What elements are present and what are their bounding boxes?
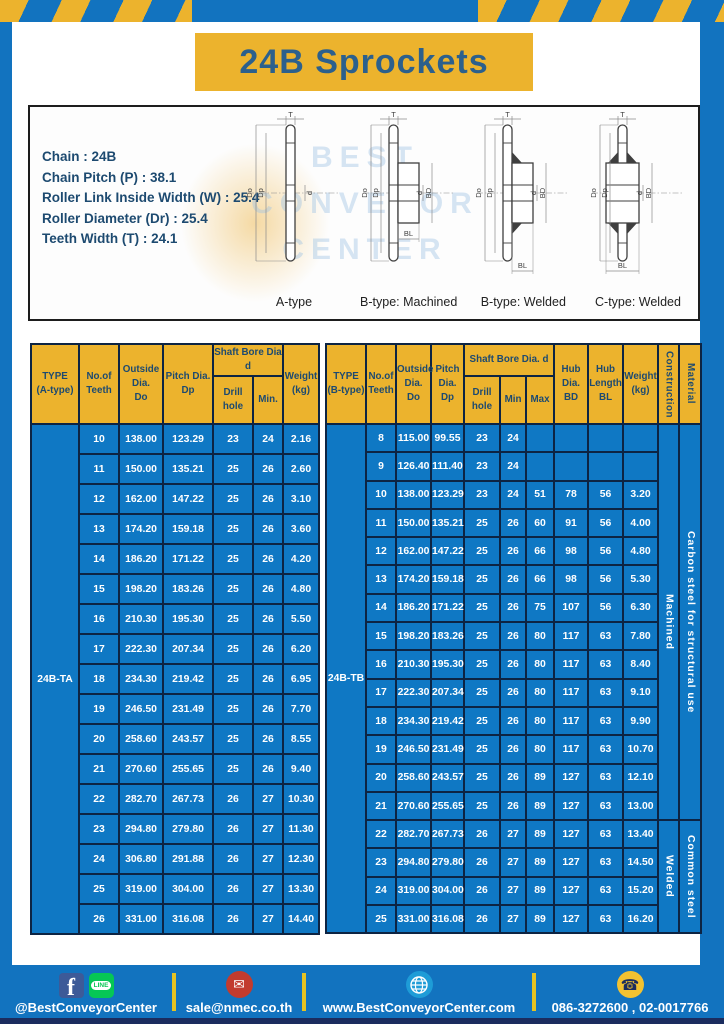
sprocket-table-b: TYPE (B-type)No.of TeethOutside Dia. DoP… xyxy=(325,343,702,934)
col-header-material: Material xyxy=(679,344,701,424)
data-cell: 26 xyxy=(500,707,526,735)
svg-text:T: T xyxy=(288,111,293,119)
diagram-caption: C-type: Welded xyxy=(595,295,681,313)
data-cell: 25 xyxy=(213,604,253,634)
table-row: 15198.20183.26252680117637.80 xyxy=(326,622,701,650)
table-row: 11150.00135.2125266091564.00 xyxy=(326,509,701,537)
data-cell: 15 xyxy=(79,574,119,604)
data-cell: 26 xyxy=(213,904,253,934)
top-hazard-band xyxy=(0,0,724,22)
col-header-shaft-bore: Shaft Bore Dia d xyxy=(213,344,283,376)
data-cell: 319.00 xyxy=(119,874,163,904)
data-cell: 56 xyxy=(588,481,623,509)
data-cell xyxy=(526,424,554,452)
data-cell: 135.21 xyxy=(431,509,464,537)
sprocket-table-a: TYPE (A-type)No.of TeethOutside Dia. DoP… xyxy=(30,343,320,935)
table-row: 20258.60243.572526891276312.10 xyxy=(326,764,701,792)
data-cell: 89 xyxy=(526,848,554,876)
diagram-caption: B-type: Welded xyxy=(481,295,566,313)
table-row: 16210.30195.30252680117638.40 xyxy=(326,650,701,678)
col-header-outside-dia: Outside Dia. Do xyxy=(119,344,163,424)
data-cell: 51 xyxy=(526,481,554,509)
data-cell: 56 xyxy=(588,537,623,565)
data-cell: 20 xyxy=(79,724,119,754)
data-cell: 23 xyxy=(464,424,500,452)
svg-text:Dp: Dp xyxy=(256,188,265,198)
data-cell: 16 xyxy=(366,650,396,678)
facebook-icon: f xyxy=(59,973,84,998)
data-cell: 24 xyxy=(500,424,526,452)
col-header-max: Max xyxy=(526,376,554,424)
spec-lines: Chain : 24BChain Pitch (P) : 38.1Roller … xyxy=(42,147,259,250)
data-cell: 24 xyxy=(366,877,396,905)
data-cell: 174.20 xyxy=(396,565,431,593)
sprocket-drawing-icon: TDoDpdBDBL xyxy=(471,111,575,287)
data-cell: 117 xyxy=(554,735,588,763)
data-cell: 14.40 xyxy=(283,904,319,934)
data-cell: 12.30 xyxy=(283,844,319,874)
data-cell: 23 xyxy=(213,424,253,454)
data-cell: 7.80 xyxy=(623,622,658,650)
data-cell: 27 xyxy=(500,877,526,905)
data-cell: 26 xyxy=(253,514,283,544)
data-cell: 26 xyxy=(464,848,500,876)
sprocket-drawing-icon: TDoDpd xyxy=(242,111,346,287)
data-cell: 234.30 xyxy=(119,664,163,694)
type-value: 24B-TB xyxy=(326,424,366,933)
data-cell: 75 xyxy=(526,594,554,622)
data-cell: 127 xyxy=(554,764,588,792)
data-cell: 89 xyxy=(526,905,554,933)
data-cell xyxy=(623,452,658,480)
data-cell: 27 xyxy=(500,820,526,848)
data-cell: 25 xyxy=(79,874,119,904)
data-cell: 4.80 xyxy=(623,537,658,565)
data-cell: 25 xyxy=(213,754,253,784)
data-cell: 63 xyxy=(588,707,623,735)
data-cell: 26 xyxy=(213,784,253,814)
table-row: 12162.00147.2225266698564.80 xyxy=(326,537,701,565)
data-cell: 12 xyxy=(79,484,119,514)
footer-social: f LINE @BestConveyorCenter xyxy=(0,965,172,1018)
col-header-weight: Weight (kg) xyxy=(283,344,319,424)
data-cell: 150.00 xyxy=(119,454,163,484)
data-cell: 255.65 xyxy=(163,754,213,784)
data-cell: 138.00 xyxy=(119,424,163,454)
frame-right xyxy=(700,22,724,965)
data-cell: 63 xyxy=(588,679,623,707)
svg-text:BL: BL xyxy=(518,261,527,270)
data-cell: 210.30 xyxy=(396,650,431,678)
data-cell: 9 xyxy=(366,452,396,480)
data-cell: 25 xyxy=(213,574,253,604)
data-cell: 26 xyxy=(213,874,253,904)
data-cell: 13.00 xyxy=(623,792,658,820)
data-cell: 150.00 xyxy=(396,509,431,537)
table-row: 22282.70267.732627891276313.40WeldedComm… xyxy=(326,820,701,848)
col-header-drill-hole: Drill hole xyxy=(464,376,500,424)
data-cell: 15.20 xyxy=(623,877,658,905)
data-cell: 279.80 xyxy=(163,814,213,844)
svg-text:Do: Do xyxy=(245,188,254,198)
data-cell: 4.20 xyxy=(283,544,319,574)
data-cell: 12 xyxy=(366,537,396,565)
data-cell: 89 xyxy=(526,764,554,792)
col-header-min: Min xyxy=(500,376,526,424)
data-cell: 123.29 xyxy=(431,481,464,509)
data-cell: 219.42 xyxy=(163,664,213,694)
data-cell: 26 xyxy=(253,604,283,634)
data-cell: 25 xyxy=(213,484,253,514)
diagram: TDoDpdA-type xyxy=(242,111,346,313)
data-cell: 6.95 xyxy=(283,664,319,694)
data-cell: 26 xyxy=(253,634,283,664)
data-cell: 117 xyxy=(554,650,588,678)
data-cell: 25 xyxy=(366,905,396,933)
data-cell: 195.30 xyxy=(431,650,464,678)
data-cell: 4.80 xyxy=(283,574,319,604)
diagram: TDoDpdBDBLC-type: Welded xyxy=(586,111,690,313)
data-cell: 331.00 xyxy=(119,904,163,934)
data-cell: 15 xyxy=(366,622,396,650)
data-cell: 18 xyxy=(366,707,396,735)
table-row: 17222.30207.34252680117639.10 xyxy=(326,679,701,707)
data-cell: 107 xyxy=(554,594,588,622)
data-cell: 316.08 xyxy=(431,905,464,933)
sprocket-drawing-icon: TDoDpdBDBL xyxy=(586,111,690,287)
svg-text:d: d xyxy=(305,191,314,195)
website-url: www.BestConveyorCenter.com xyxy=(323,1000,515,1015)
data-cell: 25 xyxy=(213,694,253,724)
type-value: 24B-TA xyxy=(31,424,79,934)
data-cell: 63 xyxy=(588,905,623,933)
data-cell: 25 xyxy=(213,634,253,664)
data-cell: 147.22 xyxy=(431,537,464,565)
svg-text:Do: Do xyxy=(360,188,369,198)
data-cell: 25 xyxy=(464,565,500,593)
spec-box: BESTCONVEYORCENTER Chain : 24BChain Pitc… xyxy=(28,105,700,321)
data-cell: 26 xyxy=(500,509,526,537)
data-cell: 267.73 xyxy=(431,820,464,848)
data-cell: 9.40 xyxy=(283,754,319,784)
data-cell: 26 xyxy=(500,792,526,820)
globe-icon xyxy=(406,971,433,998)
data-cell: 4.00 xyxy=(623,509,658,537)
bottom-strip xyxy=(0,1018,724,1024)
data-cell: 25 xyxy=(464,594,500,622)
data-cell: 10 xyxy=(79,424,119,454)
footer-bar: f LINE @BestConveyorCenter ✉ sale@nmec.c… xyxy=(0,965,724,1018)
data-cell: 26 xyxy=(213,814,253,844)
data-cell: 231.49 xyxy=(431,735,464,763)
data-cell: 9.90 xyxy=(623,707,658,735)
data-cell: 89 xyxy=(526,792,554,820)
data-cell: 26 xyxy=(500,735,526,763)
data-cell: 2.16 xyxy=(283,424,319,454)
table-row: 23294.80279.802627891276314.50 xyxy=(326,848,701,876)
data-cell: 63 xyxy=(588,792,623,820)
data-cell: 13.30 xyxy=(283,874,319,904)
data-cell: 21 xyxy=(366,792,396,820)
data-cell: 19 xyxy=(79,694,119,724)
col-header-weight: Weight (kg) xyxy=(623,344,658,424)
svg-text:BD: BD xyxy=(538,187,547,198)
data-cell: 26 xyxy=(500,622,526,650)
data-cell: 304.00 xyxy=(163,874,213,904)
data-cell: 25 xyxy=(213,544,253,574)
data-cell: 26 xyxy=(213,844,253,874)
data-cell: 23 xyxy=(464,481,500,509)
data-cell: 115.00 xyxy=(396,424,431,452)
data-cell: 222.30 xyxy=(396,679,431,707)
data-cell: 127 xyxy=(554,877,588,905)
page-title: 24B Sprockets xyxy=(239,43,488,82)
construction-value: Machined xyxy=(658,424,679,820)
data-cell: 10 xyxy=(366,481,396,509)
data-cell: 27 xyxy=(253,904,283,934)
data-cell: 26 xyxy=(500,679,526,707)
data-cell: 80 xyxy=(526,650,554,678)
data-cell: 25 xyxy=(213,724,253,754)
data-cell: 219.42 xyxy=(431,707,464,735)
phone-icon: ☎ xyxy=(617,971,644,998)
social-handle: @BestConveyorCenter xyxy=(15,1000,157,1015)
material-value: Common steel xyxy=(679,820,701,933)
spec-line: Chain : 24B xyxy=(42,147,259,168)
hazard-stripes-left-icon xyxy=(0,0,192,22)
material-value: Carbon steel for structural use xyxy=(679,424,701,820)
data-cell: 91 xyxy=(554,509,588,537)
data-cell: 243.57 xyxy=(163,724,213,754)
data-cell: 26 xyxy=(253,664,283,694)
data-cell: 63 xyxy=(588,735,623,763)
data-cell: 183.26 xyxy=(163,574,213,604)
data-cell: 14.50 xyxy=(623,848,658,876)
data-cell: 282.70 xyxy=(119,784,163,814)
data-cell: 14 xyxy=(366,594,396,622)
page: 24B Sprockets BESTCONVEYORCENTER Chain :… xyxy=(0,0,724,1024)
data-cell: 26 xyxy=(79,904,119,934)
data-cell: 80 xyxy=(526,679,554,707)
col-header-hub-dia: Hub Dia. BD xyxy=(554,344,588,424)
data-cell: 26 xyxy=(500,764,526,792)
data-cell: 174.20 xyxy=(119,514,163,544)
data-cell: 243.57 xyxy=(431,764,464,792)
data-cell: 27 xyxy=(253,844,283,874)
data-cell: 5.50 xyxy=(283,604,319,634)
table-row: 25331.00316.082627891276316.20 xyxy=(326,905,701,933)
spec-line: Roller Diameter (Dr) : 25.4 xyxy=(42,209,259,230)
data-cell xyxy=(623,424,658,452)
data-cell: 3.20 xyxy=(623,481,658,509)
table-row: 21270.60255.652526891276313.00 xyxy=(326,792,701,820)
svg-text:Dp: Dp xyxy=(600,188,609,198)
data-cell: 63 xyxy=(588,820,623,848)
col-header-outside-dia: Outside Dia. Do xyxy=(396,344,431,424)
email-icon: ✉ xyxy=(226,971,253,998)
data-cell: 126.40 xyxy=(396,452,431,480)
data-cell: 80 xyxy=(526,735,554,763)
data-cell: 246.50 xyxy=(119,694,163,724)
header-row: TYPE (B-type)No.of TeethOutside Dia. DoP… xyxy=(326,344,701,376)
data-cell: 127 xyxy=(554,848,588,876)
data-cell: 80 xyxy=(526,622,554,650)
col-header-min: Min. xyxy=(253,376,283,424)
data-cell: 127 xyxy=(554,820,588,848)
data-cell: 246.50 xyxy=(396,735,431,763)
data-cell: 9.10 xyxy=(623,679,658,707)
diagram: TDoDpdBDBLB-type: Welded xyxy=(471,111,575,313)
svg-text:Do: Do xyxy=(474,188,483,198)
data-cell xyxy=(526,452,554,480)
data-cell: 20 xyxy=(366,764,396,792)
data-cell: 25 xyxy=(213,454,253,484)
data-cell: 12.10 xyxy=(623,764,658,792)
data-cell: 7.70 xyxy=(283,694,319,724)
title-banner: 24B Sprockets xyxy=(195,33,533,91)
data-cell: 98 xyxy=(554,537,588,565)
data-cell: 186.20 xyxy=(396,594,431,622)
data-cell: 26 xyxy=(464,905,500,933)
table-row: 9126.40111.402324 xyxy=(326,452,701,480)
data-cell: 195.30 xyxy=(163,604,213,634)
data-cell: 26 xyxy=(253,754,283,784)
svg-text:T: T xyxy=(391,111,396,119)
data-cell xyxy=(588,452,623,480)
col-header-type: TYPE (A-type) xyxy=(31,344,79,424)
data-cell: 270.60 xyxy=(396,792,431,820)
table-row: 24319.00304.002627891276315.20 xyxy=(326,877,701,905)
col-header-pitch-dia: Pitch Dia. Dp xyxy=(431,344,464,424)
data-cell: 27 xyxy=(500,848,526,876)
data-cell: 24 xyxy=(253,424,283,454)
data-cell: 25 xyxy=(464,764,500,792)
table-row: 18234.30219.42252680117639.90 xyxy=(326,707,701,735)
data-cell: 26 xyxy=(253,484,283,514)
data-cell: 198.20 xyxy=(119,574,163,604)
data-cell: 23 xyxy=(464,452,500,480)
data-cell: 10.70 xyxy=(623,735,658,763)
data-cell: 8.55 xyxy=(283,724,319,754)
data-cell: 63 xyxy=(588,650,623,678)
data-cell: 304.00 xyxy=(431,877,464,905)
data-cell: 282.70 xyxy=(396,820,431,848)
data-cell: 294.80 xyxy=(396,848,431,876)
data-cell: 127 xyxy=(554,792,588,820)
data-cell: 159.18 xyxy=(431,565,464,593)
data-cell: 25 xyxy=(213,664,253,694)
data-cell: 24 xyxy=(500,452,526,480)
diagram-caption: A-type xyxy=(276,295,312,313)
data-cell: 27 xyxy=(253,814,283,844)
footer-phone: ☎ 086-3272600 , 02-0017766 xyxy=(536,965,724,1018)
table-row: 24B-TB8115.0099.552324MachinedCarbon ste… xyxy=(326,424,701,452)
data-cell: 26 xyxy=(500,650,526,678)
data-cell: 159.18 xyxy=(163,514,213,544)
header-row: TYPE (A-type)No.of TeethOutside Dia. DoP… xyxy=(31,344,319,376)
data-cell: 6.20 xyxy=(283,634,319,664)
table-row: 24B-TA10138.00123.2923242.16 xyxy=(31,424,319,454)
svg-text:Dp: Dp xyxy=(485,188,494,198)
data-cell: 27 xyxy=(253,874,283,904)
spec-line: Roller Link Inside Width (W) : 25.4 xyxy=(42,188,259,209)
data-cell: 11.30 xyxy=(283,814,319,844)
data-cell: 117 xyxy=(554,679,588,707)
col-header-teeth: No.of Teeth xyxy=(366,344,396,424)
data-cell: 111.40 xyxy=(431,452,464,480)
data-cell: 147.22 xyxy=(163,484,213,514)
data-cell: 26 xyxy=(464,820,500,848)
data-cell: 127 xyxy=(554,905,588,933)
data-cell: 56 xyxy=(588,509,623,537)
data-cell: 331.00 xyxy=(396,905,431,933)
data-cell: 291.88 xyxy=(163,844,213,874)
data-cell: 11 xyxy=(366,509,396,537)
diagrams: TDoDpdA-typeTDoDpdBDBLB-type: MachinedTD… xyxy=(242,111,690,313)
data-cell: 267.73 xyxy=(163,784,213,814)
email-address: sale@nmec.co.th xyxy=(186,1000,293,1015)
data-cell: 210.30 xyxy=(119,604,163,634)
svg-text:BL: BL xyxy=(404,229,413,238)
data-cell: 255.65 xyxy=(431,792,464,820)
data-cell: 23 xyxy=(366,848,396,876)
hazard-stripes-right-icon xyxy=(478,0,724,22)
data-cell: 14 xyxy=(79,544,119,574)
data-cell: 10.30 xyxy=(283,784,319,814)
data-cell: 18 xyxy=(79,664,119,694)
data-cell: 222.30 xyxy=(119,634,163,664)
data-cell: 13 xyxy=(79,514,119,544)
data-cell xyxy=(588,424,623,452)
svg-text:d: d xyxy=(529,191,538,195)
data-cell: 13 xyxy=(366,565,396,593)
data-cell: 26 xyxy=(500,565,526,593)
svg-text:d: d xyxy=(635,191,644,195)
data-cell: 25 xyxy=(464,537,500,565)
data-cell: 117 xyxy=(554,622,588,650)
svg-text:BD: BD xyxy=(644,187,653,198)
sprocket-drawing-icon: TDoDpdBDBL xyxy=(357,111,461,287)
data-cell: 117 xyxy=(554,707,588,735)
data-cell: 171.22 xyxy=(163,544,213,574)
data-cell: 27 xyxy=(500,905,526,933)
data-cell xyxy=(554,452,588,480)
col-header-teeth: No.of Teeth xyxy=(79,344,119,424)
data-cell: 60 xyxy=(526,509,554,537)
data-cell: 99.55 xyxy=(431,424,464,452)
data-cell: 306.80 xyxy=(119,844,163,874)
data-cell: 63 xyxy=(588,764,623,792)
col-header-pitch-dia: Pitch Dia. Dp xyxy=(163,344,213,424)
data-cell: 26 xyxy=(253,454,283,484)
data-cell xyxy=(554,424,588,452)
data-cell: 279.80 xyxy=(431,848,464,876)
svg-text:T: T xyxy=(620,111,625,119)
spec-line: Chain Pitch (P) : 38.1 xyxy=(42,168,259,189)
data-cell: 162.00 xyxy=(396,537,431,565)
data-cell: 316.08 xyxy=(163,904,213,934)
data-cell: 24 xyxy=(79,844,119,874)
diagram: TDoDpdBDBLB-type: Machined xyxy=(357,111,461,313)
data-cell: 270.60 xyxy=(119,754,163,784)
data-cell: 26 xyxy=(500,594,526,622)
data-cell: 162.00 xyxy=(119,484,163,514)
data-cell: 135.21 xyxy=(163,454,213,484)
table-row: 13174.20159.1825266698565.30 xyxy=(326,565,701,593)
data-cell: 294.80 xyxy=(119,814,163,844)
data-cell: 17 xyxy=(79,634,119,664)
col-header-shaft-bore: Shaft Bore Dia. d xyxy=(464,344,554,376)
